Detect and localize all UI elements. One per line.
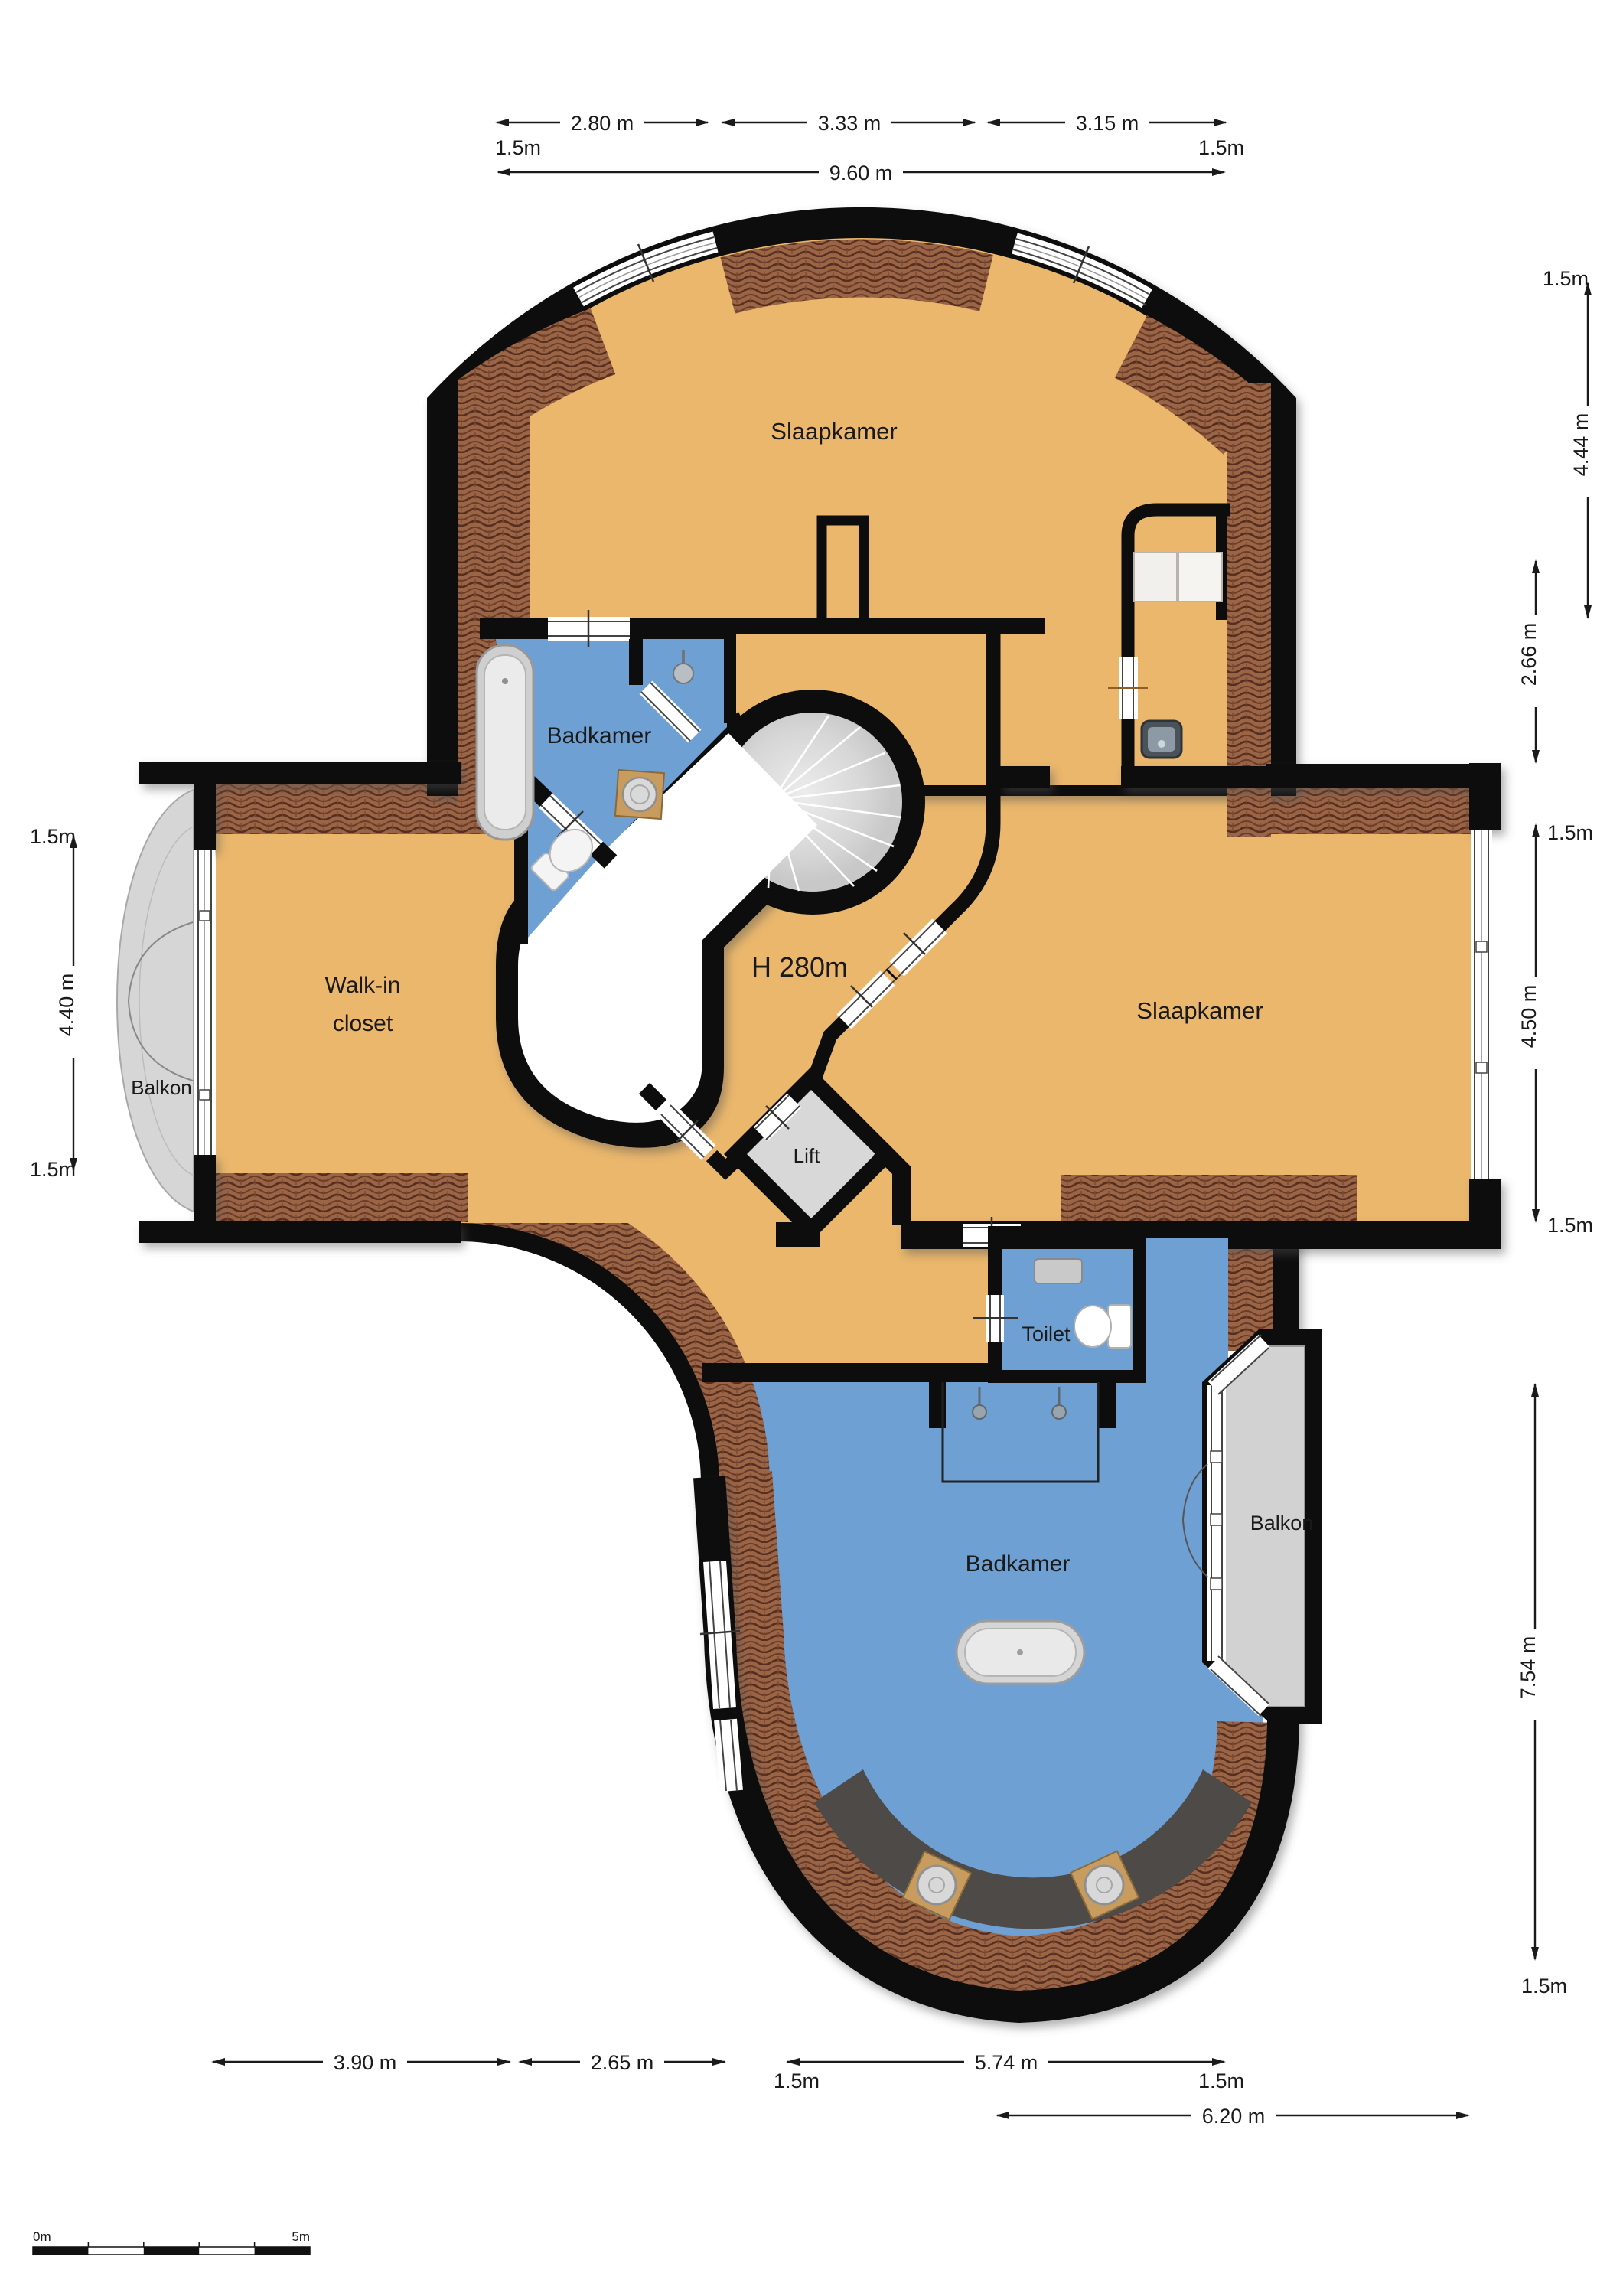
svg-text:closet: closet: [333, 1011, 393, 1036]
svg-text:Walk-in: Walk-in: [325, 973, 401, 998]
svg-text:4.50 m: 4.50 m: [1517, 985, 1540, 1049]
svg-text:Balkon: Balkon: [1250, 1512, 1314, 1534]
svg-text:1.5m: 1.5m: [1198, 2069, 1244, 2092]
svg-text:Slaapkamer: Slaapkamer: [771, 418, 897, 445]
svg-text:6.20 m: 6.20 m: [1202, 2105, 1266, 2128]
svg-text:5m: 5m: [292, 2229, 310, 2244]
svg-text:1.5m: 1.5m: [1547, 1214, 1593, 1237]
svg-text:Slaapkamer: Slaapkamer: [1136, 997, 1263, 1024]
svg-text:1.5m: 1.5m: [30, 825, 76, 848]
svg-text:9.60 m: 9.60 m: [829, 161, 893, 184]
svg-text:H 280m: H 280m: [751, 951, 848, 983]
svg-text:1.5m: 1.5m: [774, 2069, 820, 2092]
svg-text:1.5m: 1.5m: [1547, 821, 1593, 844]
svg-text:2.66 m: 2.66 m: [1517, 623, 1540, 687]
svg-text:3.33 m: 3.33 m: [818, 112, 882, 135]
svg-text:0m: 0m: [33, 2229, 51, 2244]
svg-text:3.90 m: 3.90 m: [334, 2051, 397, 2074]
svg-text:Toilet: Toilet: [1022, 1322, 1071, 1345]
svg-text:Badkamer: Badkamer: [547, 723, 652, 748]
svg-text:1.5m: 1.5m: [1198, 136, 1244, 159]
svg-text:1.5m: 1.5m: [1543, 267, 1589, 290]
svg-text:4.40 m: 4.40 m: [55, 974, 78, 1037]
svg-text:7.54 m: 7.54 m: [1517, 1636, 1540, 1700]
svg-text:2.65 m: 2.65 m: [591, 2051, 654, 2074]
svg-text:3.15 m: 3.15 m: [1076, 112, 1139, 135]
svg-text:1.5m: 1.5m: [495, 136, 541, 159]
svg-text:5.74 m: 5.74 m: [975, 2051, 1038, 2074]
svg-text:4.44 m: 4.44 m: [1569, 413, 1592, 477]
svg-text:1.5m: 1.5m: [30, 1158, 76, 1181]
svg-text:Balkon: Balkon: [131, 1076, 192, 1099]
svg-text:Lift: Lift: [794, 1144, 820, 1167]
svg-text:1.5m: 1.5m: [1521, 1975, 1567, 1998]
svg-text:2.80 m: 2.80 m: [571, 112, 634, 135]
svg-text:Badkamer: Badkamer: [966, 1551, 1071, 1577]
